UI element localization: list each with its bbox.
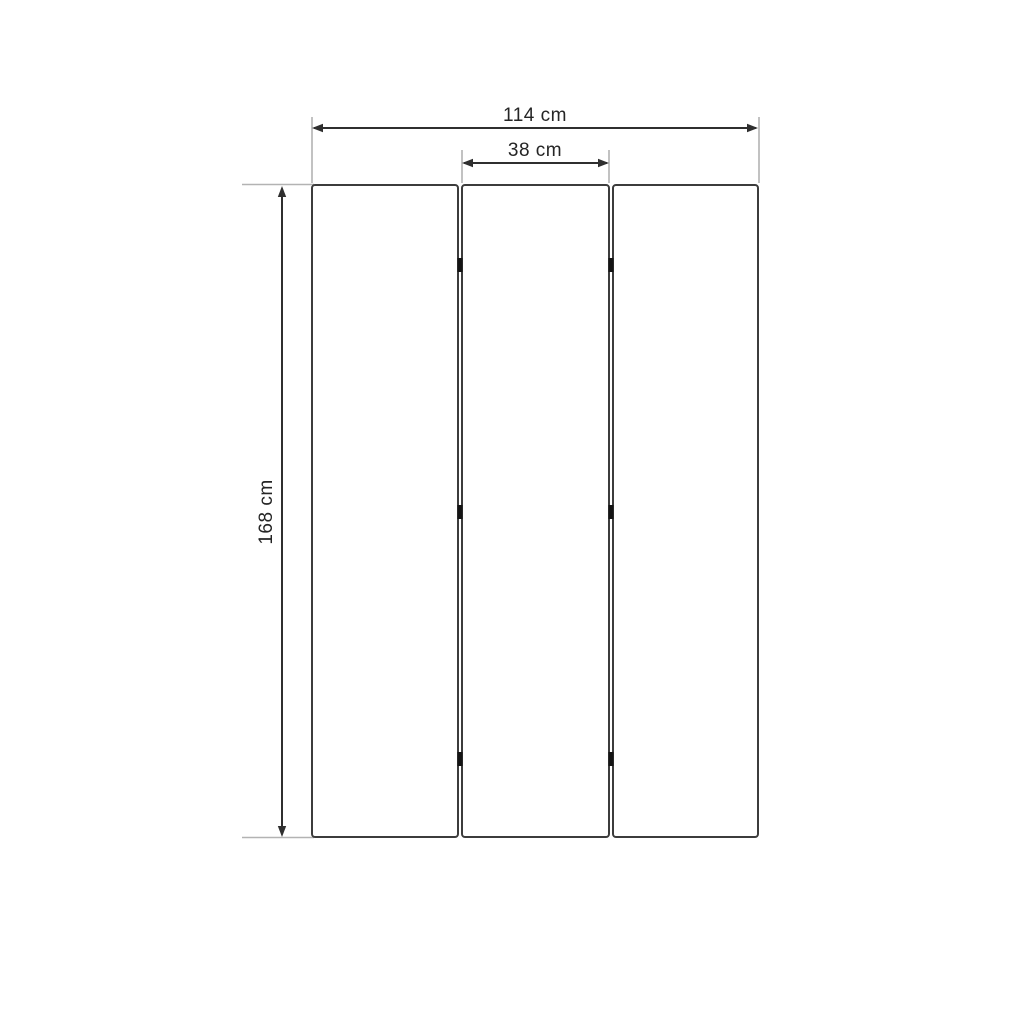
panel-middle: [462, 185, 609, 837]
dimension-panel-width-label: 38 cm: [508, 140, 562, 161]
arrow-up-icon: [278, 186, 286, 197]
hinge-icon: [609, 505, 614, 519]
dimension-height: 168 cm: [256, 186, 286, 837]
hinge-icon: [458, 752, 463, 766]
arrow-left-icon: [462, 159, 473, 167]
dimension-height-label: 168 cm: [256, 479, 277, 544]
panel-left: [312, 185, 458, 837]
dimension-total-width-label: 114 cm: [503, 105, 567, 126]
arrow-right-icon: [598, 159, 609, 167]
dimension-diagram: 114 cm 38 cm 168 cm: [0, 0, 1024, 1024]
diagram-svg: 114 cm 38 cm 168 cm: [0, 0, 1024, 1024]
dimension-total-width: 114 cm: [312, 105, 758, 132]
panel-right: [613, 185, 758, 837]
arrow-down-icon: [278, 826, 286, 837]
hinge-icon: [458, 258, 463, 272]
hinge-icon: [458, 505, 463, 519]
arrow-left-icon: [312, 124, 323, 132]
hinge-icon: [609, 258, 614, 272]
panels: [312, 185, 758, 837]
dimension-panel-width: 38 cm: [462, 140, 609, 167]
hinge-icon: [609, 752, 614, 766]
arrow-right-icon: [747, 124, 758, 132]
